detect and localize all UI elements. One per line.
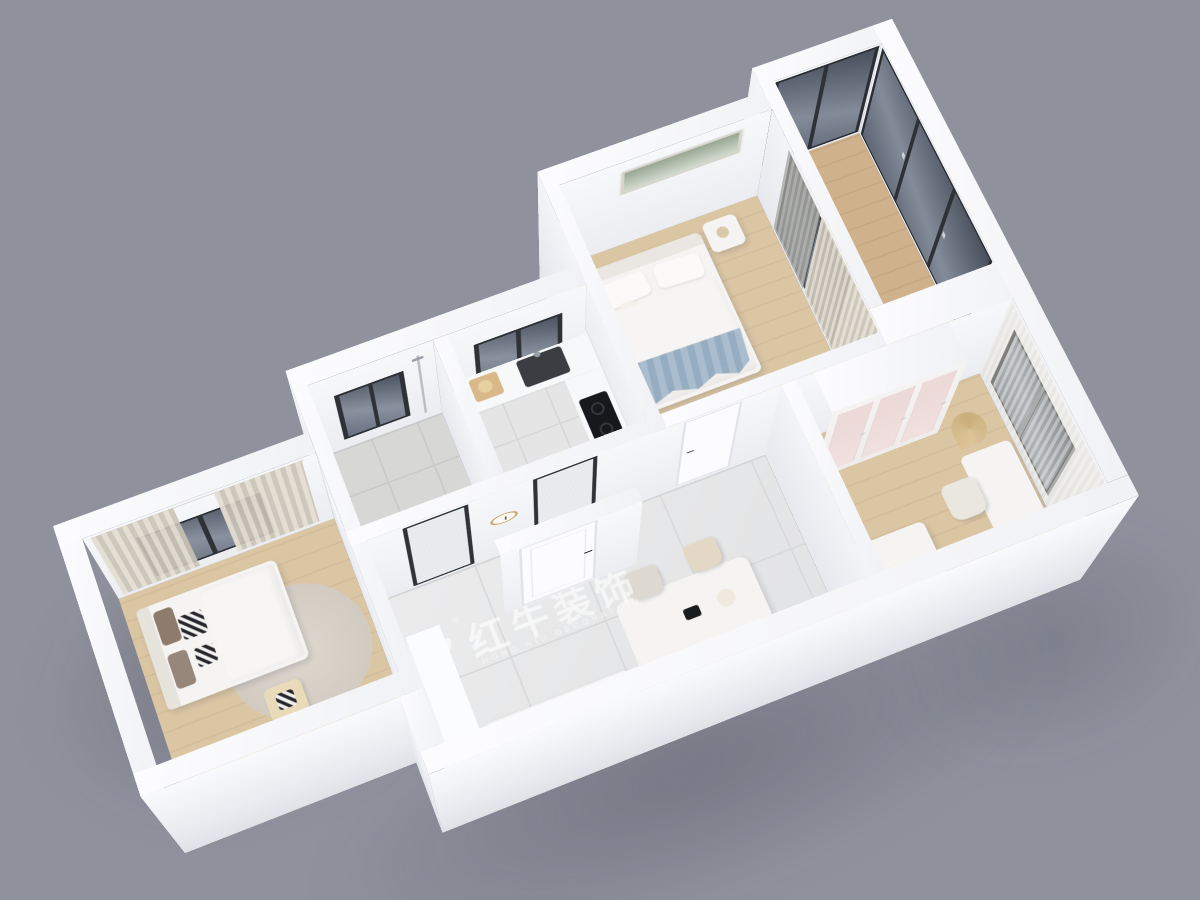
window-mullion-icon [368, 384, 380, 426]
wall-clock-icon [490, 508, 518, 527]
table-lamp-icon [715, 225, 731, 240]
apartment-3d-render: ® 红牛装饰 HONG NIU DECORATION 6646 5252 [0, 0, 1200, 900]
door-handle-icon [687, 450, 694, 454]
striped-pillow [193, 642, 219, 668]
glass-mullion-icon [894, 118, 920, 201]
striped-cushion [275, 688, 298, 710]
clock-hand [505, 516, 507, 520]
scene: ® 红牛装饰 HONG NIU DECORATION 6646 5252 [0, 0, 1200, 900]
glass-handle-icon [942, 231, 946, 239]
bread [476, 378, 495, 395]
glass-mullion-icon [807, 65, 829, 148]
striped-pillow [177, 609, 209, 641]
burner-icon [589, 400, 606, 416]
table-lamp-black [682, 604, 702, 621]
glass-mullion-icon [927, 188, 955, 268]
faucet-icon [533, 350, 542, 358]
shower-column [416, 355, 427, 413]
floor-plan: ® 红牛装饰 HONG NIU DECORATION 6646 5252 [20, 72, 1095, 900]
table-decor-plate [714, 586, 738, 609]
window-mullion-icon [197, 516, 218, 554]
